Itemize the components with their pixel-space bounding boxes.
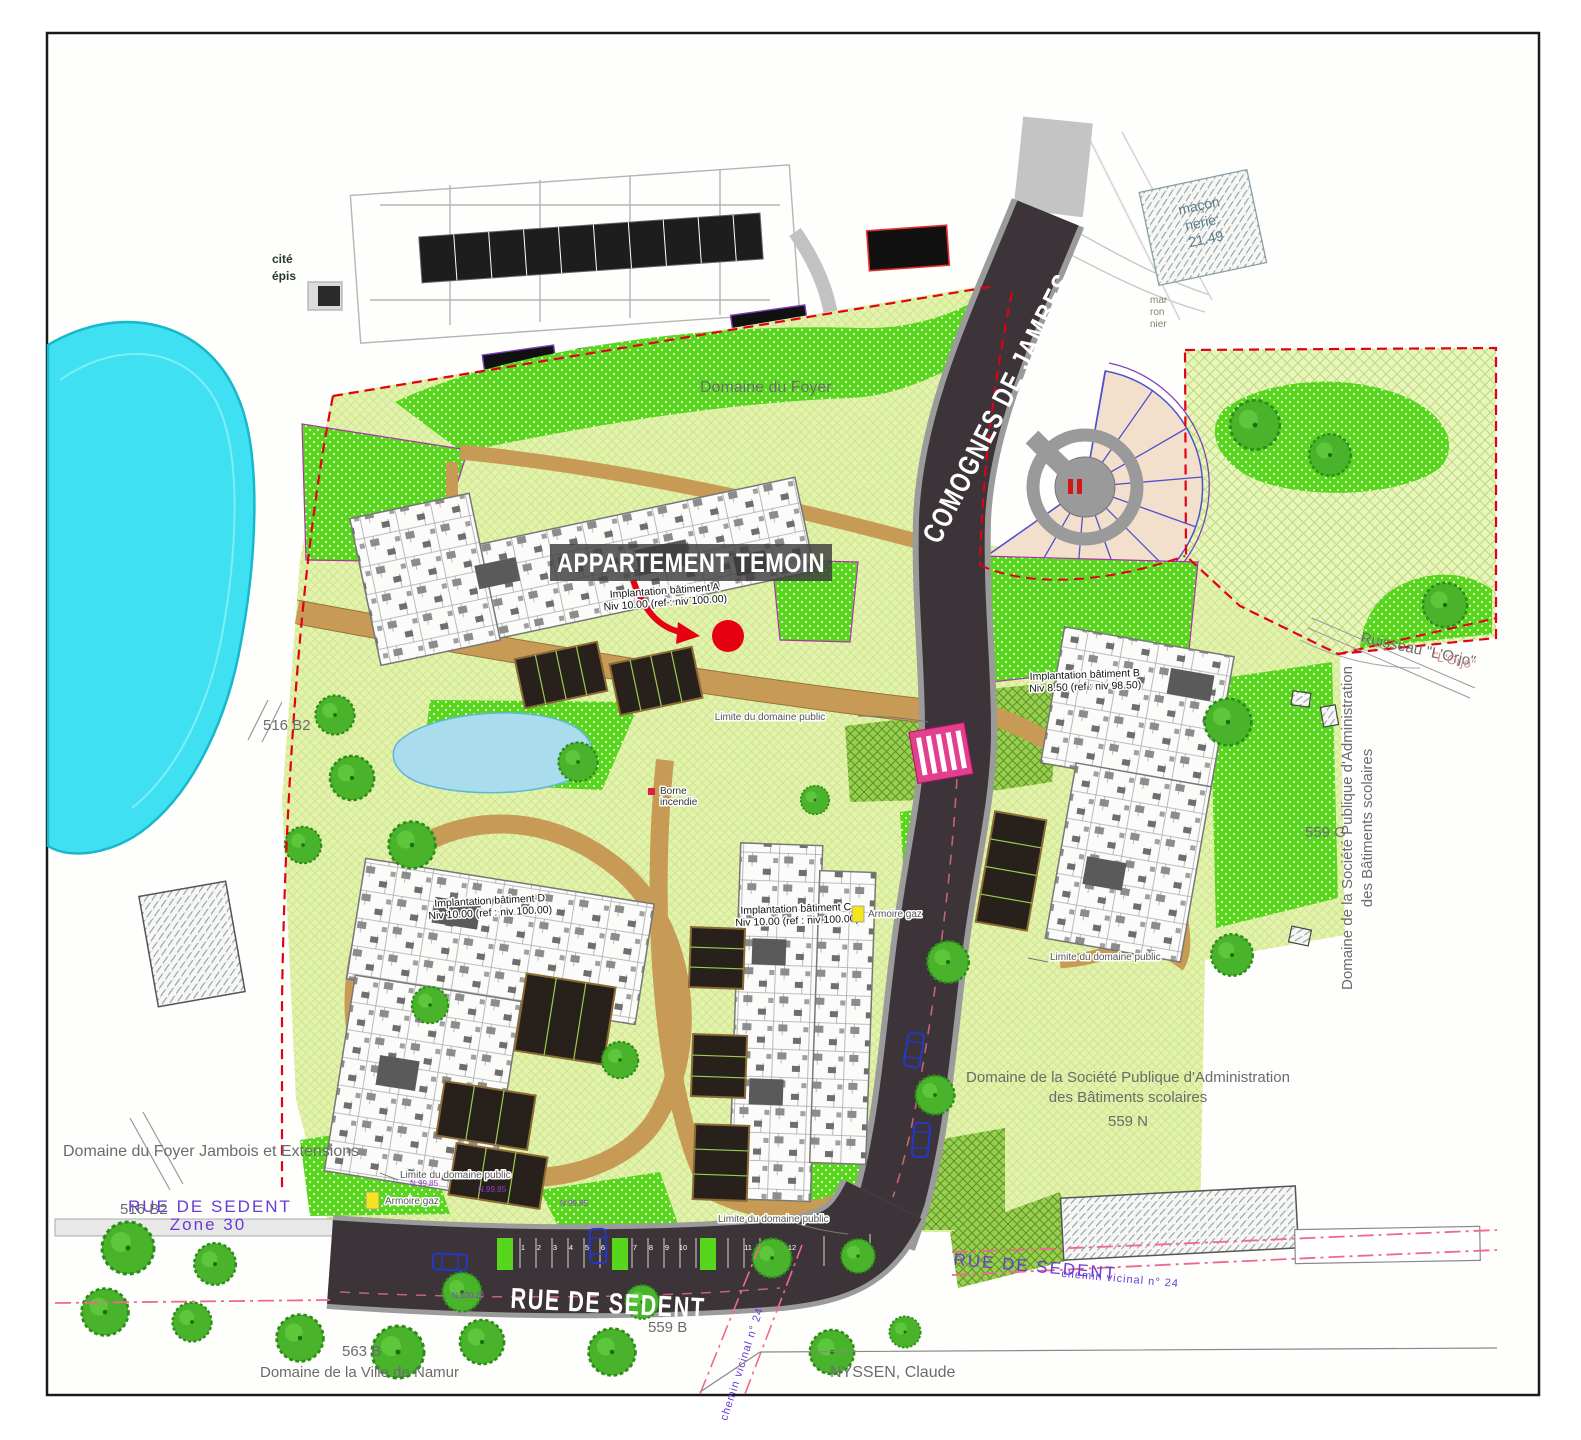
svg-text:des Bâtiments scolaires: des Bâtiments scolaires [1359,749,1376,907]
svg-text:5: 5 [585,1243,589,1252]
svg-text:Limite du domaine public: Limite du domaine public [1050,952,1161,963]
svg-text:6: 6 [601,1243,605,1252]
svg-text:cité: cité [272,252,293,266]
svg-text:N.99.85: N.99.85 [410,1179,439,1188]
domaine-ville-namur: Domaine de la Ville de Namur [260,1364,459,1381]
site-plan-drawing: APPARTEMENT TEMOIN COMOGNES DE JAMBES RU… [0,0,1581,1440]
parking-green-strip [612,1238,628,1270]
svg-text:N.99.85: N.99.85 [478,1185,507,1194]
svg-text:9: 9 [665,1243,669,1252]
parcel-559n: 559 N [1108,1113,1148,1130]
svg-text:4: 4 [569,1243,573,1252]
armoire-gaz-marker-right: Armoire gaz [852,906,922,922]
svg-text:10: 10 [679,1243,687,1252]
parking-green-strip [497,1238,513,1270]
svg-text:2: 2 [537,1243,541,1252]
svg-text:Limite du domaine public: Limite du domaine public [718,1214,829,1225]
svg-text:Limite du domaine public: Limite du domaine public [715,712,826,723]
nyssen-claude-label: NYSSEN, Claude [830,1364,955,1381]
svg-text:Armoire gaz: Armoire gaz [385,1196,439,1207]
svg-text:Domaine de la Société Publique: Domaine de la Société Publique d'Adminis… [1339,666,1356,990]
svg-text:nier: nier [1150,319,1167,330]
zone-30-label: Zone 30 [170,1215,246,1234]
svg-text:Armoire gaz: Armoire gaz [868,909,922,920]
callout-label: APPARTEMENT TEMOIN [557,548,825,578]
svg-text:incendie: incendie [660,797,698,808]
building-b-label: Implantation bâtiment B Niv 8.50 (ref : … [1029,667,1142,695]
svg-text:11: 11 [744,1243,752,1252]
parcel-516b2-left: 516 B2 [263,717,311,734]
svg-text:12: 12 [788,1243,796,1252]
highlight-dot [712,620,744,652]
parking-block [867,225,950,270]
svg-text:Borne: Borne [660,786,687,797]
domaine-foyer-top: Domaine du Foyer [700,379,832,396]
domaine-foyer-left: Domaine du Foyer Jambois et Extensions [63,1143,359,1160]
svg-text:des Bâtiments scolaires: des Bâtiments scolaires [1049,1089,1207,1106]
parcel-563b: 563 B [342,1343,381,1360]
svg-text:ron: ron [1150,307,1164,318]
svg-text:8: 8 [649,1243,653,1252]
svg-text:N.99.85: N.99.85 [560,1199,589,1208]
building-c-label: Implantation bâtiment C Niv 10.00 (ref :… [735,901,859,929]
pedestrian-crossing [909,723,973,784]
svg-text:Domaine de la Société Publique: Domaine de la Société Publique d'Adminis… [966,1069,1290,1086]
svg-text:mar: mar [1150,295,1168,306]
building-c [728,843,876,1204]
parcel-516b2-bottom: 516 B2 [120,1201,168,1218]
svg-text:épis: épis [272,269,296,283]
svg-text:3: 3 [553,1243,557,1252]
svg-text:1: 1 [521,1243,525,1252]
svg-text:7: 7 [633,1243,637,1252]
parcel-559b: 559 B [648,1319,687,1336]
site-plan-page: APPARTEMENT TEMOIN COMOGNES DE JAMBES RU… [0,0,1581,1440]
svg-text:N.100.20: N.100.20 [452,1291,485,1300]
parking-green-strip [700,1238,716,1270]
